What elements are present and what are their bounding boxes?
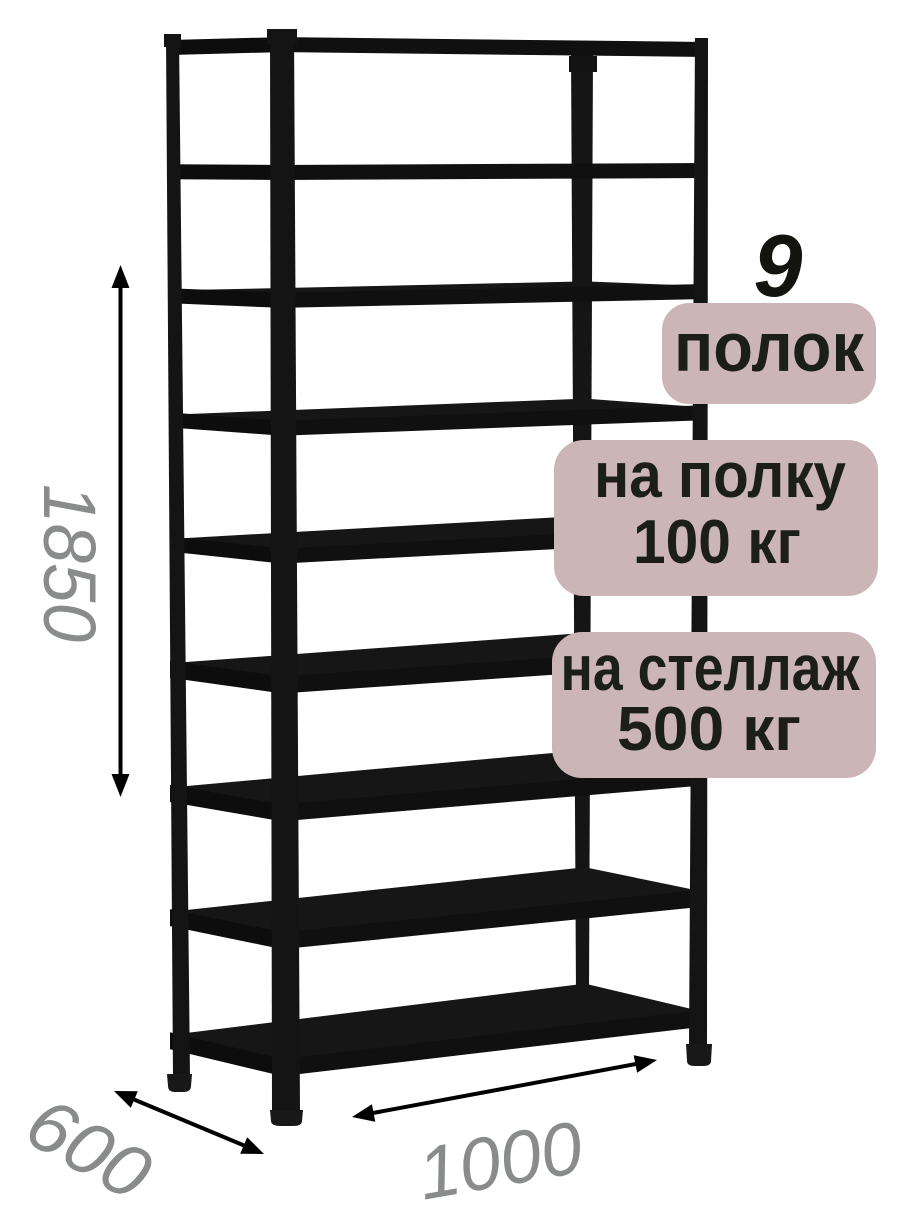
svg-text:1850: 1850 bbox=[28, 484, 111, 642]
svg-text:на стеллаж: на стеллаж bbox=[561, 632, 861, 704]
svg-text:9: 9 bbox=[754, 216, 803, 315]
svg-text:полок: полок bbox=[674, 308, 865, 386]
svg-text:на полку: на полку bbox=[594, 439, 846, 511]
svg-text:500 кг: 500 кг bbox=[617, 695, 801, 764]
svg-text:100 кг: 100 кг bbox=[633, 508, 801, 577]
